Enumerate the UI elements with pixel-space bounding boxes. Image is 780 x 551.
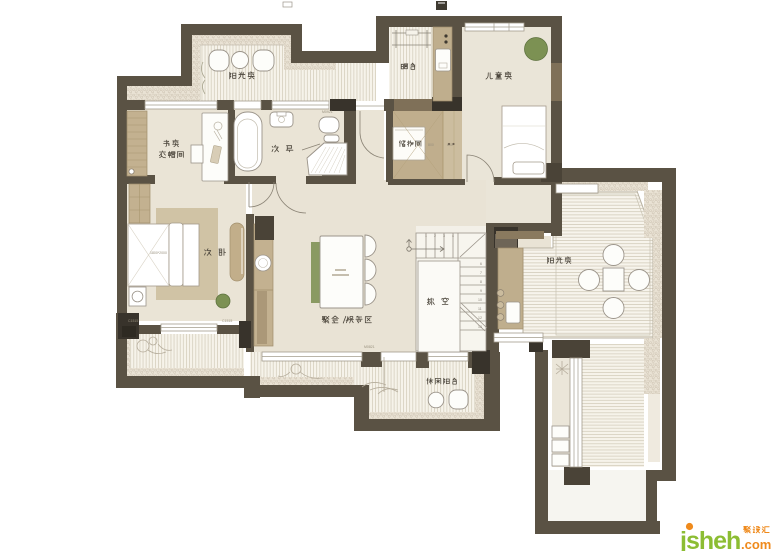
svg-text:jsheh: jsheh bbox=[679, 527, 740, 551]
svg-text:9: 9 bbox=[480, 289, 482, 293]
svg-text:11: 11 bbox=[478, 307, 482, 311]
svg-text:7: 7 bbox=[480, 271, 482, 275]
svg-text:C1515: C1515 bbox=[128, 319, 138, 323]
svg-text:2: 2 bbox=[434, 234, 436, 238]
svg-text:6: 6 bbox=[480, 262, 482, 266]
svg-text:3: 3 bbox=[443, 234, 445, 238]
svg-text:M0821: M0821 bbox=[364, 345, 375, 349]
svg-text:12: 12 bbox=[478, 316, 482, 320]
svg-text:8: 8 bbox=[480, 280, 482, 284]
svg-text:1: 1 bbox=[425, 234, 427, 238]
svg-text:1800*2000: 1800*2000 bbox=[150, 251, 167, 255]
svg-text:M0921: M0921 bbox=[322, 110, 333, 114]
svg-text:10: 10 bbox=[478, 298, 482, 302]
svg-text:4: 4 bbox=[452, 234, 454, 238]
svg-text:800: 800 bbox=[428, 143, 434, 147]
svg-text:C1515: C1515 bbox=[222, 319, 232, 323]
svg-text:13: 13 bbox=[478, 325, 482, 329]
svg-text:.com: .com bbox=[741, 537, 771, 551]
